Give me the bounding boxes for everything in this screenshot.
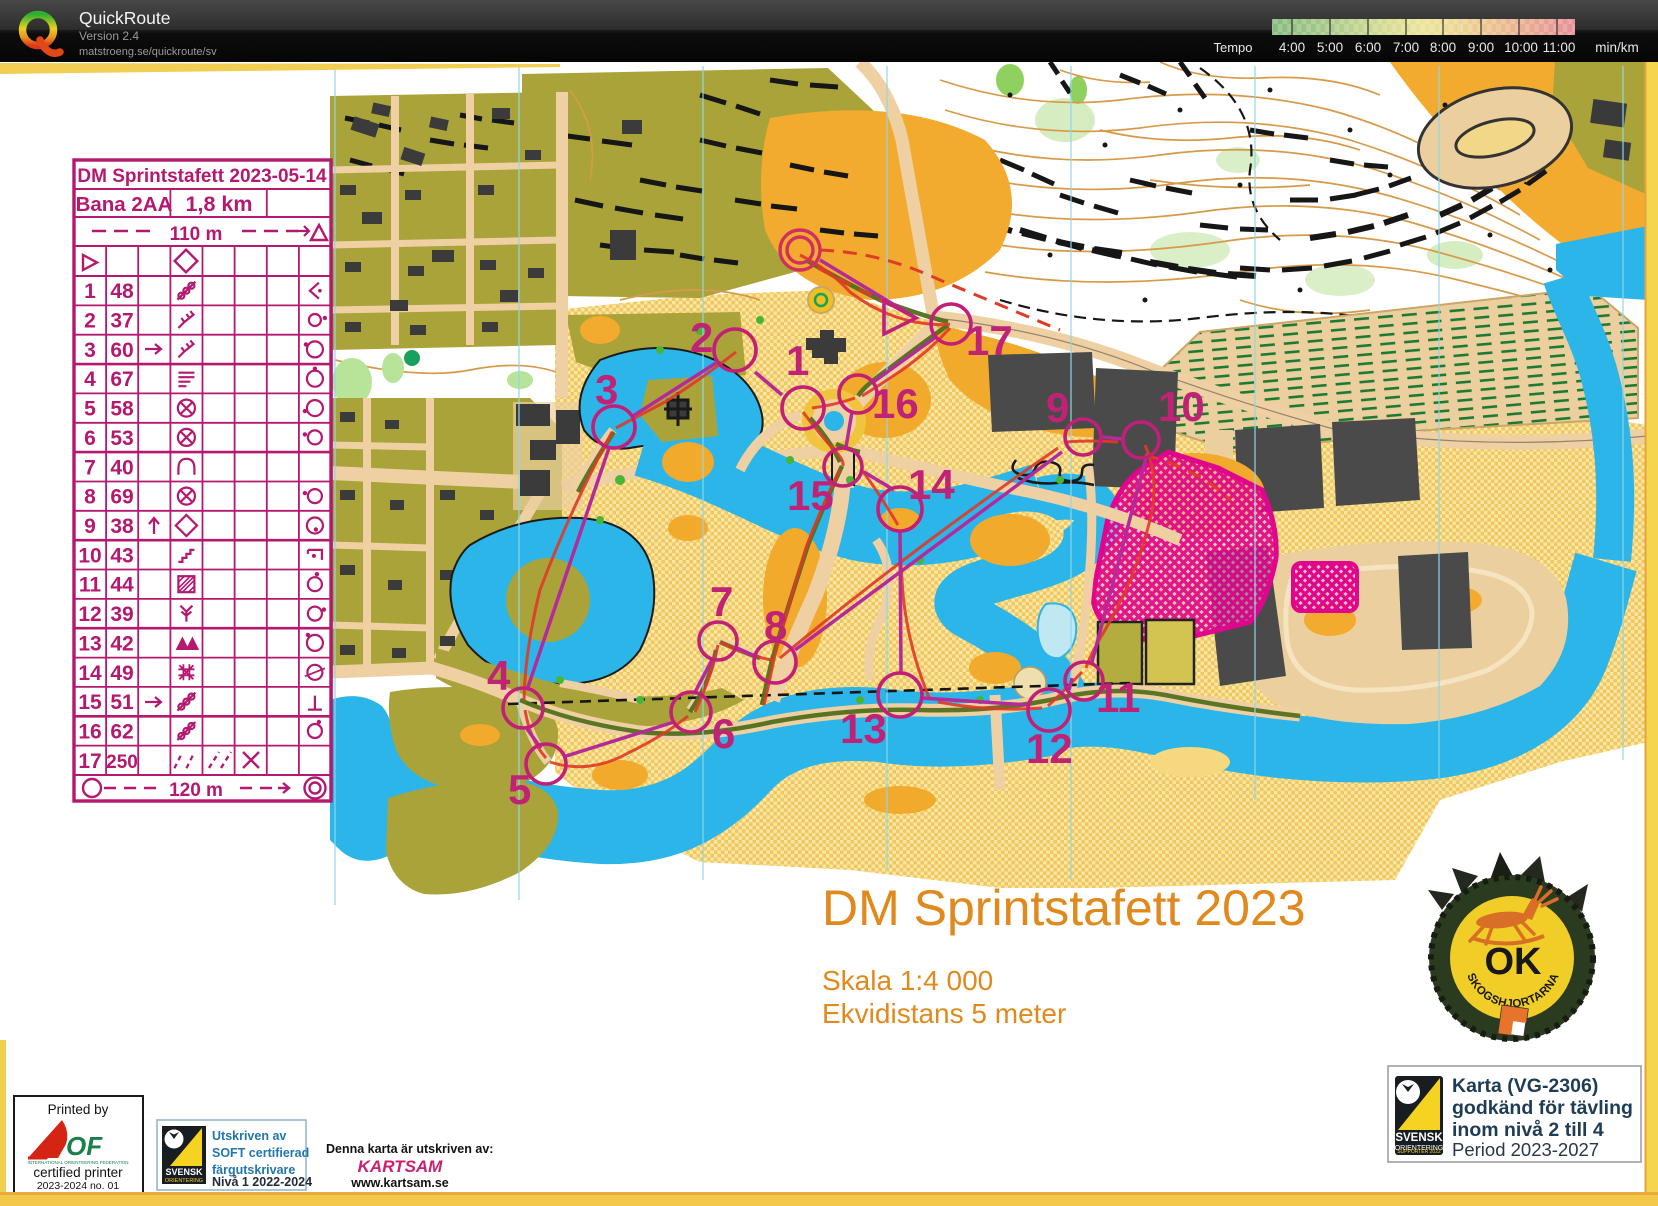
svg-text:Utskriven av: Utskriven av (212, 1129, 286, 1143)
svg-text:SUPPORTER 2022: SUPPORTER 2022 (1397, 1149, 1441, 1155)
svg-text:Version 2.4: Version 2.4 (79, 29, 139, 43)
svg-text:15: 15 (787, 472, 834, 519)
svg-text:8:00: 8:00 (1430, 40, 1456, 55)
svg-text:3: 3 (84, 339, 96, 362)
svg-text:ORIENTERING: ORIENTERING (165, 1178, 203, 1184)
svg-text:2: 2 (690, 314, 713, 361)
svg-text:Bana 2AA: Bana 2AA (76, 193, 173, 216)
svg-text:16: 16 (78, 721, 101, 744)
svg-text:Karta (VG-2306): Karta (VG-2306) (1452, 1075, 1598, 1097)
svg-text:69: 69 (110, 486, 133, 509)
svg-text:13: 13 (78, 632, 101, 655)
svg-text:Skala 1:4 000: Skala 1:4 000 (822, 965, 993, 996)
svg-text:SVENSK: SVENSK (165, 1167, 203, 1177)
svg-text:QuickRoute: QuickRoute (79, 8, 170, 28)
svg-text:11:00: 11:00 (1543, 40, 1576, 55)
svg-text:39: 39 (110, 603, 133, 626)
svg-text:8: 8 (84, 486, 96, 509)
svg-text:120 m: 120 m (169, 780, 223, 801)
svg-text:5:00: 5:00 (1317, 40, 1343, 55)
svg-text:9:00: 9:00 (1468, 40, 1494, 55)
svg-text:Tempo: Tempo (1213, 40, 1252, 55)
svg-text:9: 9 (84, 515, 96, 538)
svg-text:certified printer: certified printer (33, 1165, 123, 1180)
svg-text:Ekvidistans 5 meter: Ekvidistans 5 meter (822, 998, 1066, 1029)
svg-text:SVENSK: SVENSK (1395, 1132, 1443, 1144)
svg-text:Denna karta är utskriven av:: Denna karta är utskriven av: (326, 1142, 493, 1156)
svg-text:Nivå 1 2022-2024: Nivå 1 2022-2024 (212, 1175, 312, 1189)
svg-text:6: 6 (712, 710, 735, 757)
svg-text:60: 60 (110, 339, 133, 362)
svg-text:15: 15 (78, 691, 102, 714)
svg-text:3: 3 (595, 366, 618, 413)
svg-text:1: 1 (84, 280, 96, 303)
svg-text:4: 4 (84, 368, 96, 391)
svg-text:17: 17 (966, 317, 1013, 364)
svg-text:2023-2024 no. 01: 2023-2024 no. 01 (37, 1180, 119, 1192)
svg-text:51: 51 (110, 691, 134, 714)
svg-text:11: 11 (79, 574, 102, 597)
svg-text:11: 11 (1096, 674, 1140, 721)
svg-text:SOFT certifierad: SOFT certifierad (212, 1146, 309, 1160)
svg-text:10: 10 (1158, 383, 1205, 430)
svg-text:4:00: 4:00 (1279, 40, 1305, 55)
svg-text:58: 58 (110, 398, 134, 421)
svg-text:OK: OK (1485, 941, 1543, 983)
svg-text:Printed by: Printed by (48, 1102, 109, 1117)
svg-text:2: 2 (84, 310, 96, 333)
svg-text:12: 12 (78, 603, 101, 626)
svg-text:5: 5 (508, 766, 531, 813)
svg-text:inom nivå 2 till 4: inom nivå 2 till 4 (1452, 1118, 1604, 1141)
svg-text:7: 7 (84, 456, 96, 479)
svg-text:37: 37 (110, 310, 133, 333)
svg-text:5: 5 (84, 398, 96, 421)
svg-text:4: 4 (487, 652, 511, 699)
svg-text:1,8 km: 1,8 km (186, 192, 253, 216)
svg-text:48: 48 (110, 280, 134, 303)
svg-text:67: 67 (110, 368, 133, 391)
svg-text:49: 49 (110, 662, 133, 685)
svg-text:6:00: 6:00 (1355, 40, 1381, 55)
svg-text:10:00: 10:00 (1504, 40, 1538, 55)
svg-text:13: 13 (840, 705, 887, 752)
svg-text:53: 53 (110, 427, 133, 450)
svg-text:matstroeng.se/quickroute/sv: matstroeng.se/quickroute/sv (79, 46, 217, 58)
svg-text:12: 12 (1026, 725, 1073, 772)
svg-text:OF: OF (66, 1131, 103, 1161)
svg-text:6: 6 (84, 427, 96, 450)
svg-text:110 m: 110 m (170, 224, 223, 245)
svg-text:40: 40 (110, 456, 133, 479)
svg-text:DM Sprintstafett 2023-05-14: DM Sprintstafett 2023-05-14 (77, 166, 327, 187)
svg-text:KARTSAM: KARTSAM (358, 1157, 444, 1176)
svg-text:7: 7 (710, 578, 733, 625)
svg-text:1: 1 (786, 337, 809, 384)
svg-text:8: 8 (764, 602, 787, 649)
svg-text:17: 17 (78, 750, 101, 773)
svg-text:43: 43 (110, 544, 133, 567)
svg-text:9: 9 (1046, 384, 1069, 431)
svg-text:42: 42 (110, 632, 133, 655)
svg-text:16: 16 (872, 380, 919, 427)
svg-text:14: 14 (78, 662, 102, 685)
svg-text:62: 62 (110, 721, 133, 744)
svg-text:250: 250 (106, 752, 138, 773)
svg-text:14: 14 (908, 461, 955, 508)
svg-text:Period 2023-2027: Period 2023-2027 (1452, 1139, 1599, 1160)
svg-text:44: 44 (110, 574, 134, 597)
svg-text:38: 38 (110, 515, 134, 538)
svg-text:DM Sprintstafett 2023: DM Sprintstafett 2023 (822, 880, 1306, 936)
svg-text:www.kartsam.se: www.kartsam.se (350, 1176, 449, 1190)
svg-text:min/km: min/km (1595, 40, 1639, 55)
svg-text:10: 10 (78, 544, 101, 567)
svg-text:7:00: 7:00 (1393, 40, 1419, 55)
svg-text:godkänd för tävling: godkänd för tävling (1452, 1097, 1633, 1119)
